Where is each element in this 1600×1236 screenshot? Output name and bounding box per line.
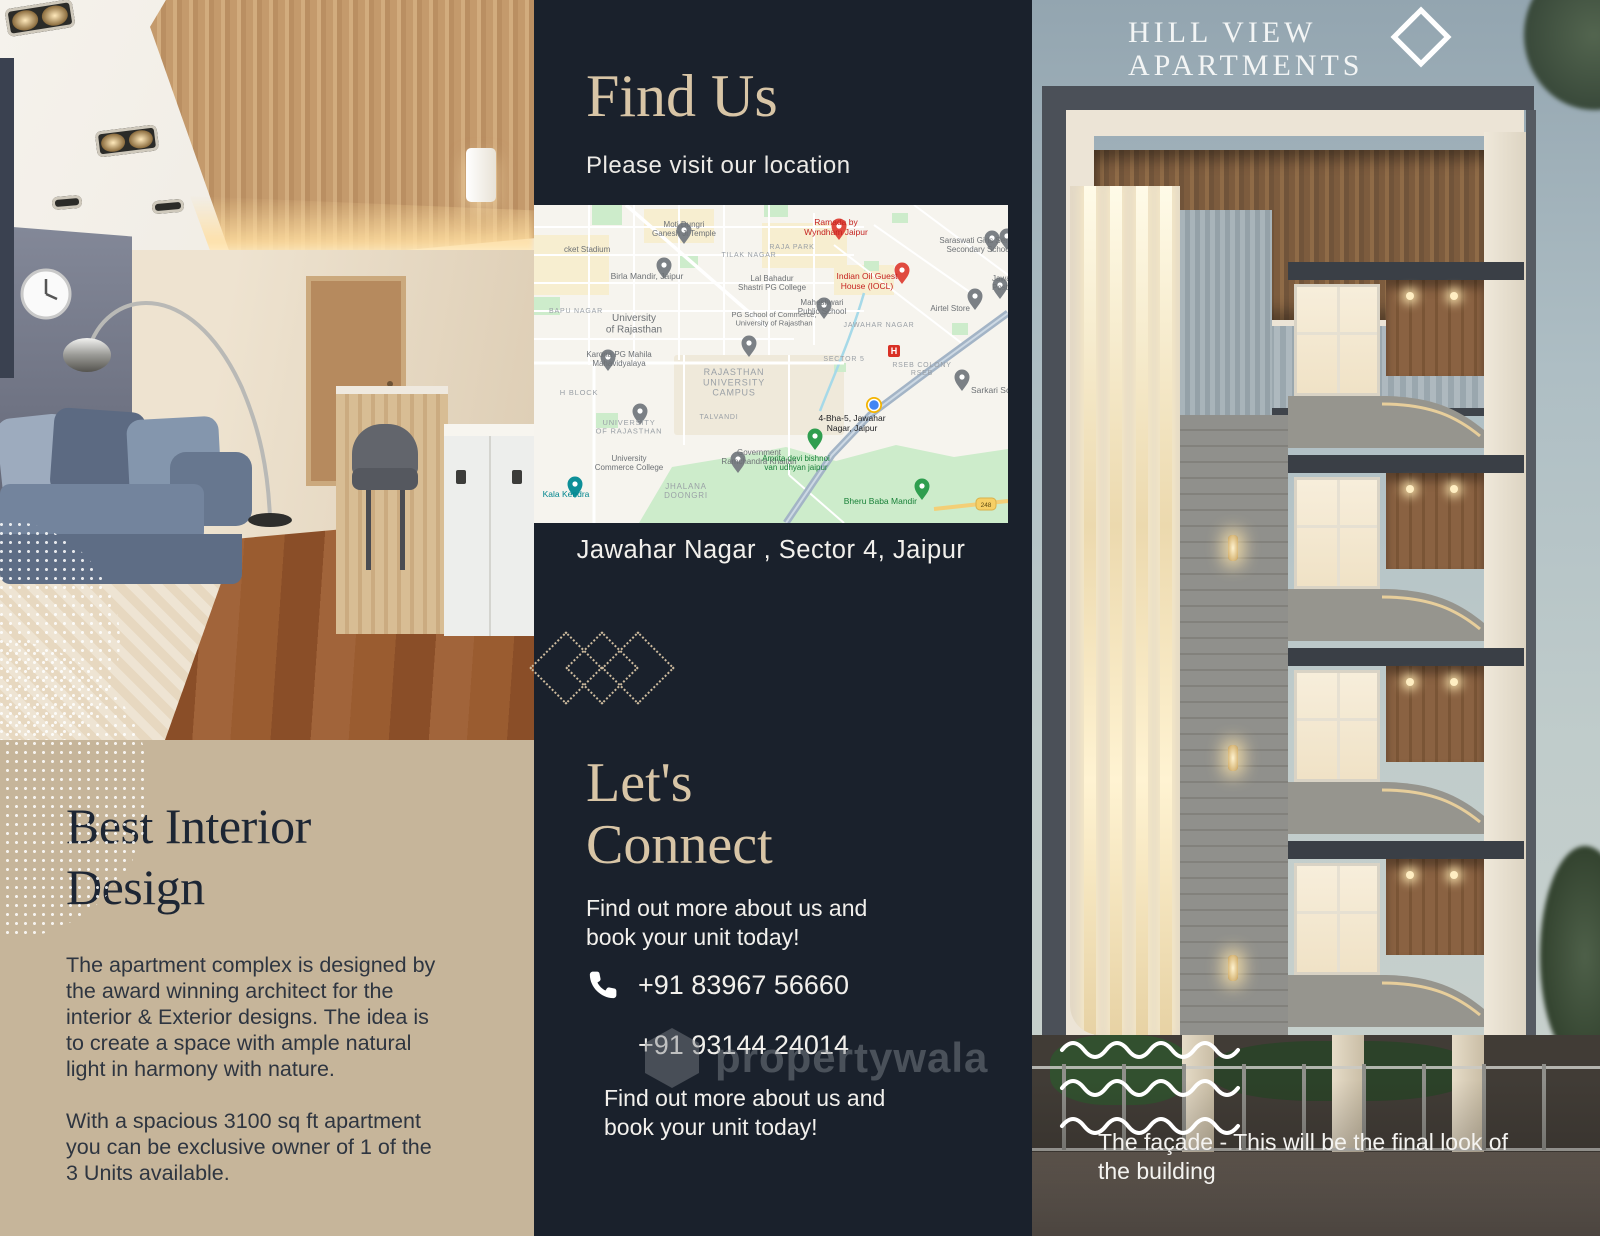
- svg-text:Bheru Baba Mandir: Bheru Baba Mandir: [844, 496, 917, 506]
- stool-leg: [400, 490, 405, 570]
- left-paragraph-2: With a spacious 3100 sq ft apartment you…: [66, 1108, 440, 1186]
- svg-text:Airtel Store: Airtel Store: [930, 304, 970, 313]
- lets-connect-title: Let's Connect: [586, 752, 773, 876]
- svg-text:MaheshwariPublic School: MaheshwariPublic School: [798, 298, 847, 316]
- phone-icon: [586, 968, 620, 1002]
- left-panel: Best Interior Design The apartment compl…: [0, 0, 534, 1236]
- watermark: propertywala: [645, 1028, 988, 1088]
- arc-floor-lamp: [30, 260, 310, 550]
- diamond-decoration: [540, 642, 648, 694]
- svg-text:SECTOR 5: SECTOR 5: [823, 356, 864, 363]
- svg-text:248: 248: [981, 502, 992, 509]
- phone-number-1[interactable]: +91 83967 56660: [638, 970, 849, 1001]
- watermark-text: propertywala: [715, 1034, 988, 1082]
- svg-text:H BLOCK: H BLOCK: [560, 388, 599, 397]
- svg-text:TILAK NAGAR: TILAK NAGAR: [721, 252, 776, 259]
- phone-row[interactable]: +91 83967 56660: [586, 968, 849, 1002]
- bar-stool-seat: [352, 468, 418, 490]
- find-us-title: Find Us: [586, 62, 778, 131]
- svg-text:JHALANADOONGRI: JHALANADOONGRI: [664, 482, 708, 500]
- find-us-subtitle: Please visit our location: [586, 152, 851, 180]
- connect-blurb: Find out more about us and book your uni…: [586, 894, 916, 952]
- address-line: Jawahar Nagar , Sector 4, Jaipur: [534, 536, 1008, 565]
- ceiling-spotlight: [51, 195, 82, 211]
- watermark-logo-icon: [645, 1028, 699, 1088]
- stool-leg: [366, 490, 371, 570]
- kitchen-cabinet: [444, 436, 534, 636]
- svg-text:JAWAHAR NAGAR: JAWAHAR NAGAR: [844, 322, 915, 329]
- svg-text:Indian Oil GuestHouse (IOCL): Indian Oil GuestHouse (IOCL): [837, 271, 899, 291]
- location-map[interactable]: H248 cket StadiumMoti DungriGanesh Ji Te…: [534, 205, 1008, 523]
- kitchen-counter: [444, 424, 534, 436]
- lets-connect-line1: Let's: [586, 752, 773, 814]
- svg-text:Karona PG MahilaMahavidyalaya: Karona PG MahilaMahavidyalaya: [586, 350, 652, 368]
- svg-text:Jawahar NagarPost Office: Jawahar NagarPost Office: [992, 274, 1008, 292]
- brochure-page: Best Interior Design The apartment compl…: [0, 0, 1600, 1236]
- svg-text:Birla Mandir, Jaipur: Birla Mandir, Jaipur: [611, 271, 684, 281]
- svg-text:Saraswati Girls SeniorSecondar: Saraswati Girls SeniorSecondary School: [939, 236, 1008, 254]
- left-paragraph-1: The apartment complex is designed by the…: [66, 952, 440, 1082]
- svg-text:H: H: [891, 346, 898, 356]
- lets-connect-line2: Connect: [586, 814, 773, 876]
- svg-text:Amrita devi bishnoivan udhyan: Amrita devi bishnoivan udhyan jaipur: [762, 454, 830, 472]
- svg-text:Universityof Rajasthan: Universityof Rajasthan: [606, 313, 662, 336]
- svg-text:TALVANDI: TALVANDI: [699, 414, 738, 421]
- svg-text:cket Stadium: cket Stadium: [564, 245, 611, 254]
- facade-caption: The façade - This will be the final look…: [1098, 1128, 1538, 1186]
- svg-text:Kala Kendra: Kala Kendra: [543, 489, 590, 499]
- cylinder-light: [466, 148, 496, 202]
- svg-text:BAPU NAGAR: BAPU NAGAR: [549, 308, 603, 315]
- svg-text:RAJA PARK: RAJA PARK: [769, 244, 814, 251]
- interior-photo: [0, 0, 534, 740]
- svg-text:4-Bha-5, JawaharNagar, Jaipur: 4-Bha-5, JawaharNagar, Jaipur: [818, 413, 885, 433]
- building-panel: HILL VIEW APARTMENTS: [1032, 0, 1600, 1236]
- svg-text:UNIVERSITYOF RAJASTHAN: UNIVERSITYOF RAJASTHAN: [596, 418, 663, 436]
- kitchen-island: [336, 386, 448, 634]
- wall-edge: [0, 58, 14, 378]
- svg-text:Sarkari School: Sarkari School: [971, 385, 1008, 395]
- connect-blurb-2: Find out more about us and book your uni…: [604, 1084, 924, 1142]
